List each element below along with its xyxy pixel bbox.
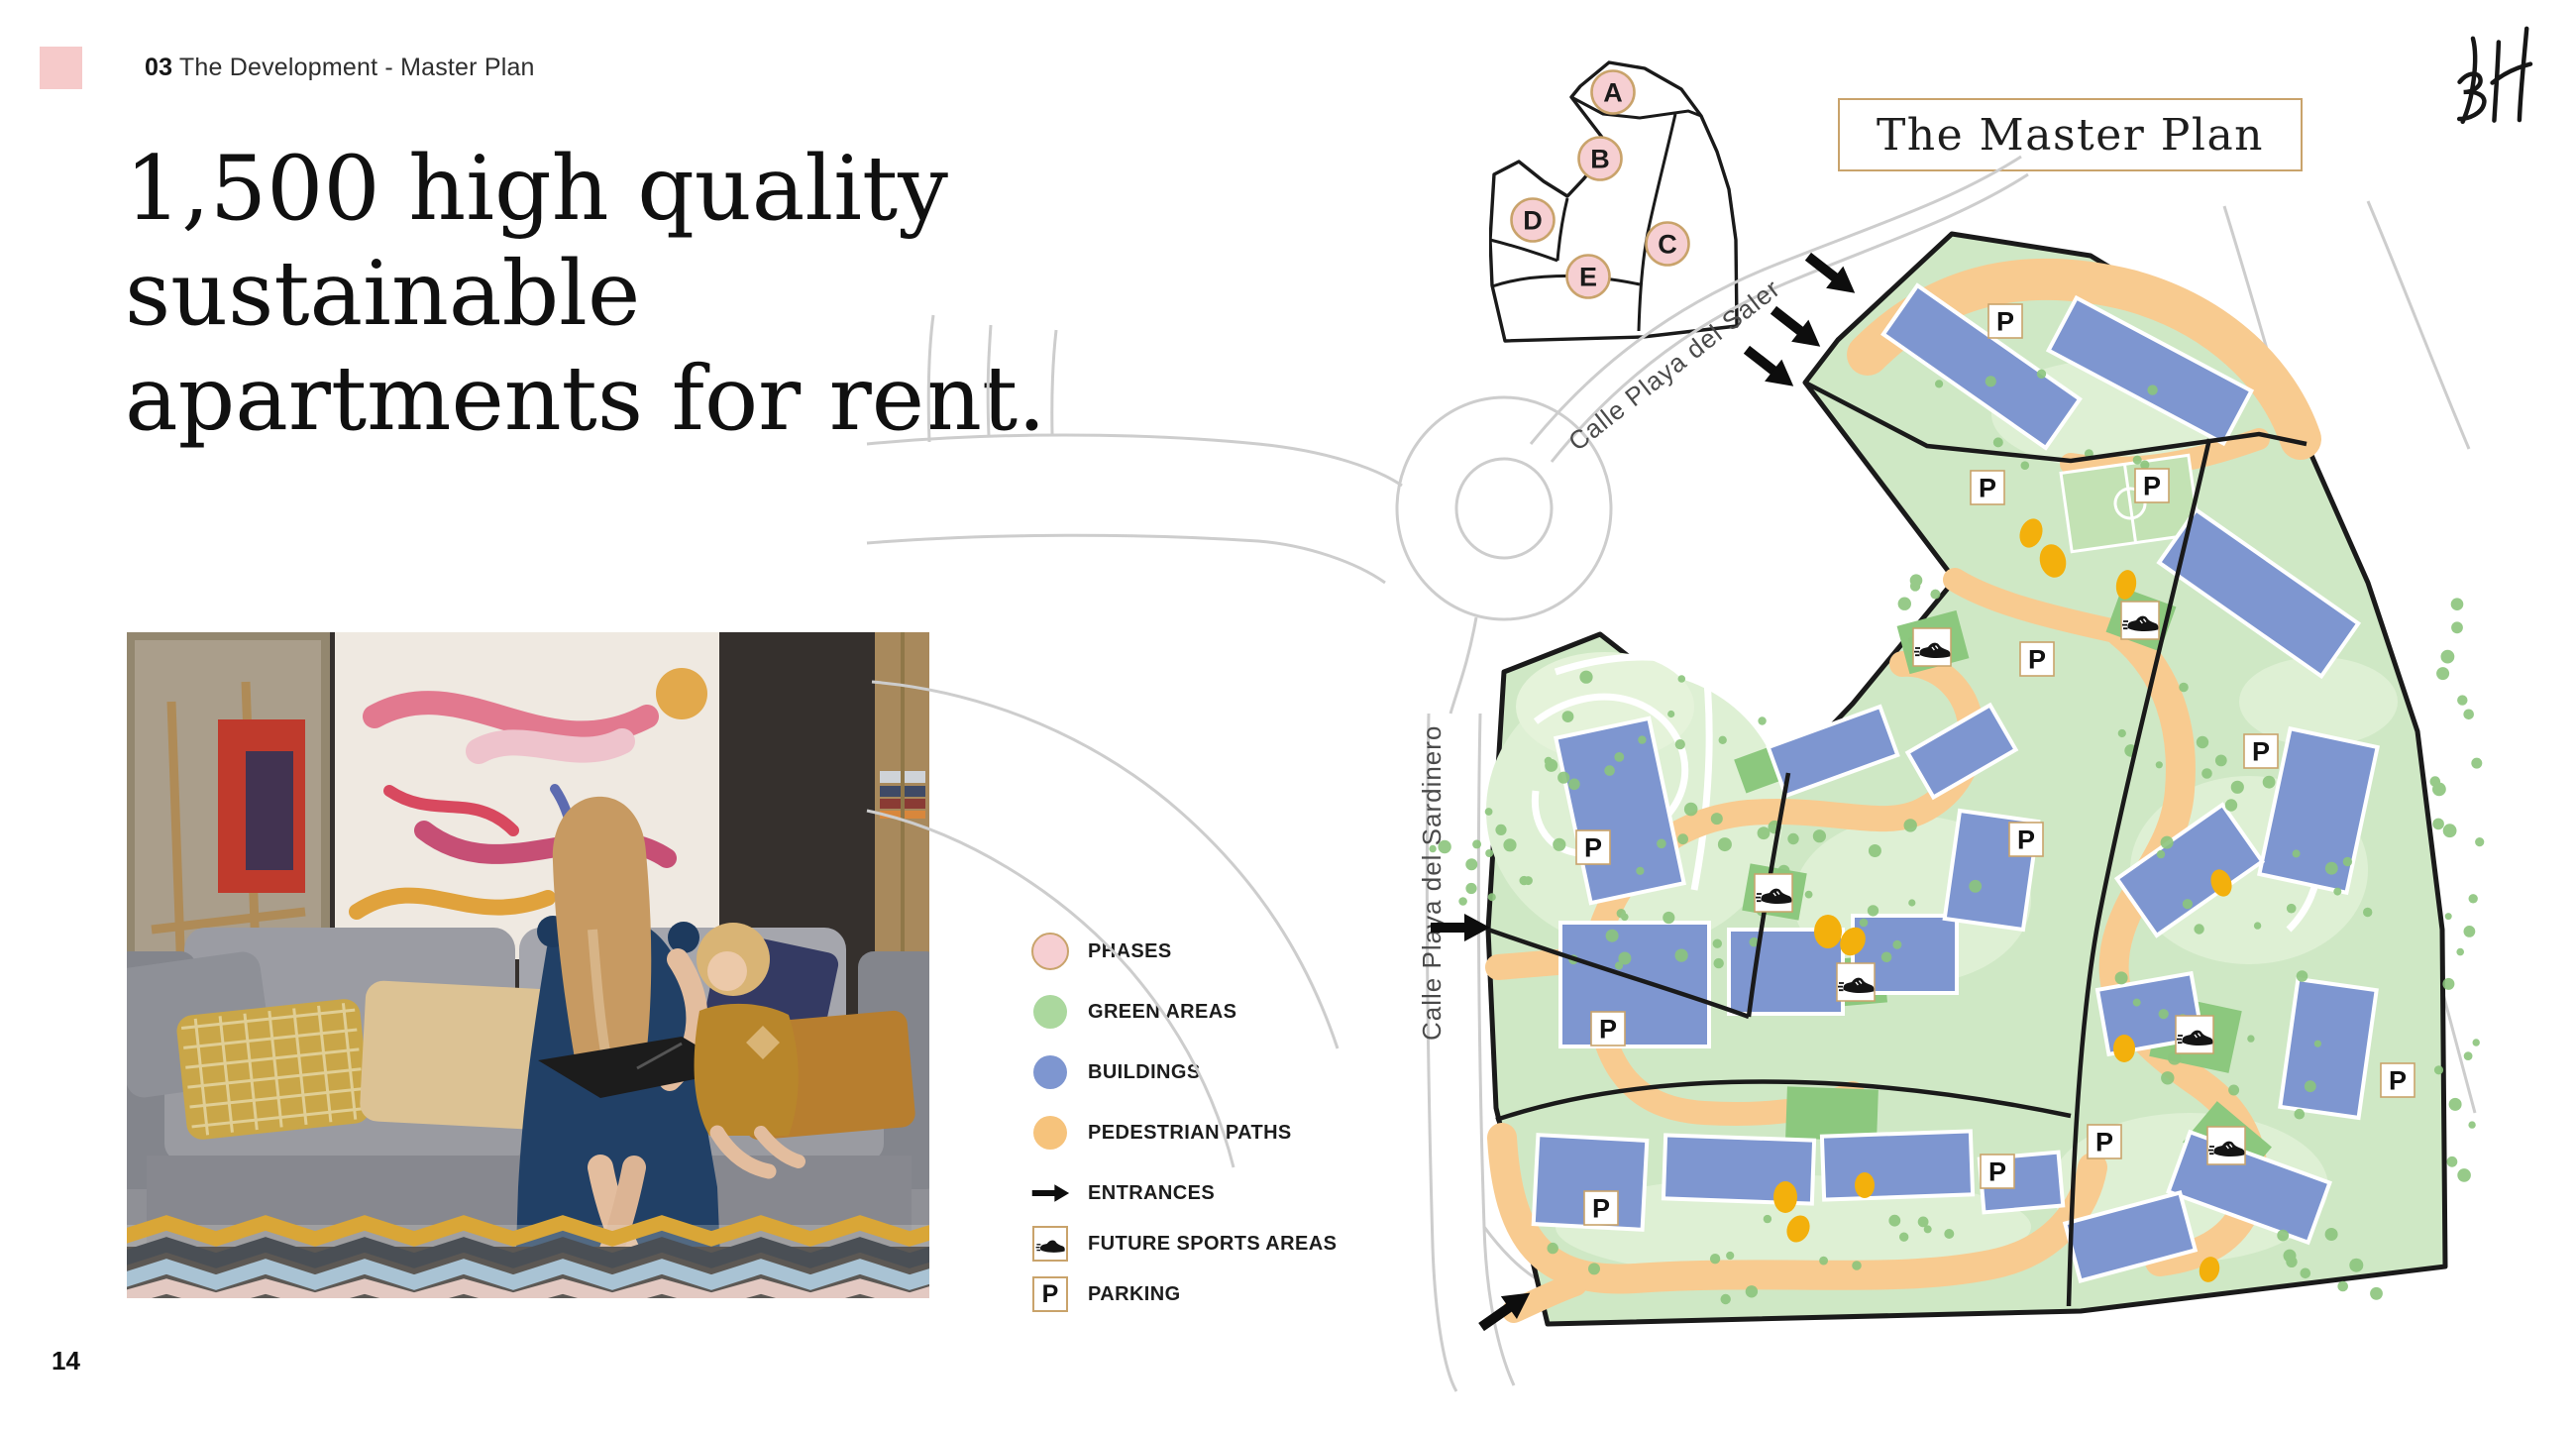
section-title: The Development - Master Plan	[179, 54, 535, 81]
slide-master-plan: 03 The Development - Master Plan 1,500 h…	[0, 0, 2576, 1431]
lifestyle-photo	[127, 632, 929, 1298]
header-accent-square	[40, 47, 82, 89]
svg-text:A: A	[1603, 78, 1623, 108]
photo-illustration	[127, 632, 929, 1298]
brand-logo	[2439, 22, 2548, 131]
bh-script-icon	[2439, 22, 2548, 131]
section-number: 03	[145, 54, 172, 81]
breadcrumb: 03 The Development - Master Plan	[145, 54, 535, 82]
street-label-saler: Calle Playa del Saler	[1562, 274, 1785, 457]
master-plan-map: P	[842, 117, 2487, 1395]
page-number: 14	[52, 1346, 80, 1376]
slide-header: 03 The Development - Master Plan	[40, 47, 535, 89]
phase-marker-A: A	[1592, 71, 1635, 114]
street-label-sardinero: Calle Playa del Sardinero	[1417, 725, 1447, 1041]
